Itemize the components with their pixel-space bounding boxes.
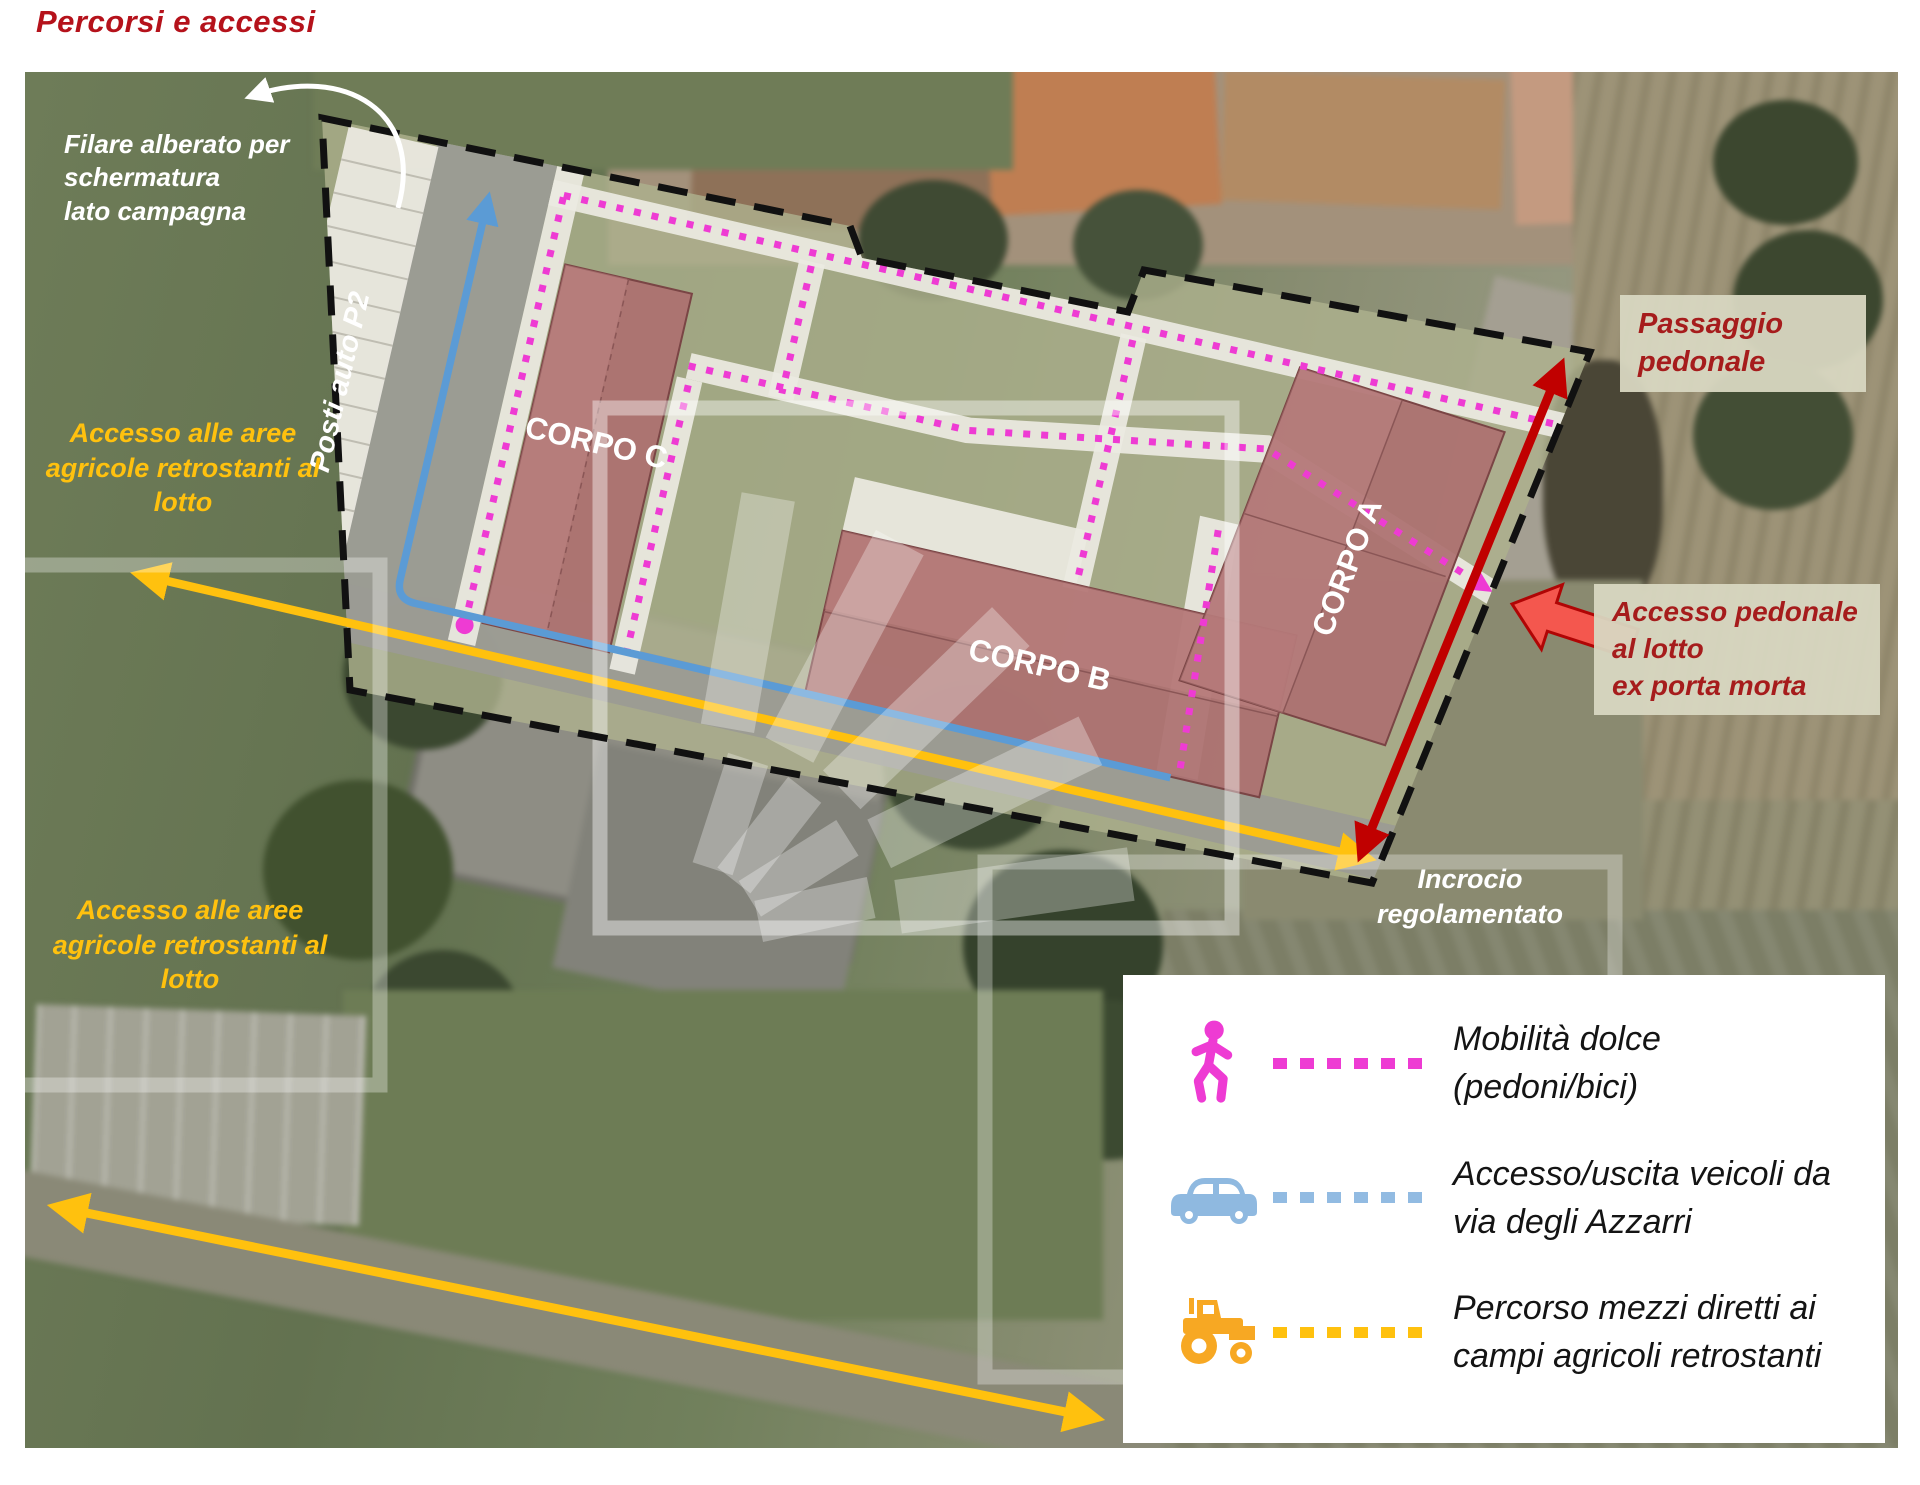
note-line: Accesso alle aree — [18, 416, 348, 451]
note-line: regolamentato — [1330, 897, 1610, 932]
note-line: lato campagna — [64, 195, 289, 228]
box-line: Passaggio — [1638, 305, 1848, 343]
note-access-bottom: Accesso alle aree agricole retrostanti a… — [40, 893, 340, 997]
note-line: agricole retrostanti al — [40, 928, 340, 963]
note-line: schermatura — [64, 161, 289, 194]
tractor-icon — [1153, 1295, 1273, 1369]
pedestrian-icon — [1153, 1020, 1273, 1106]
box-line: pedonale — [1638, 343, 1848, 381]
farm-access-arrow-bottom — [57, 1207, 1095, 1418]
legend-label-line: campi agricoli retrostanti — [1453, 1332, 1851, 1380]
box-passaggio: Passaggio pedonale — [1620, 295, 1866, 392]
note-incrocio: Incrocio regolamentato — [1330, 862, 1610, 931]
box-line: Accesso pedonale — [1612, 594, 1862, 631]
legend-label-line: Accesso/uscita veicoli da — [1453, 1150, 1851, 1198]
legend-label-line: via degli Azzarri — [1453, 1198, 1851, 1246]
note-line: Incrocio — [1330, 862, 1610, 897]
legend-item-mezzi-agricoli: Percorso mezzi diretti ai campi agricoli… — [1153, 1284, 1851, 1381]
legend-label: Accesso/uscita veicoli da via degli Azza… — [1453, 1150, 1851, 1247]
legend-dots-pink — [1273, 1058, 1425, 1069]
legend-dots-blue — [1273, 1192, 1425, 1203]
note-line: Filare alberato per — [64, 128, 289, 161]
note-line: agricole retrostanti al — [18, 451, 348, 486]
legend-dots-yellow — [1273, 1327, 1425, 1338]
legend-item-mobilita-dolce: Mobilità dolce (pedoni/bici) — [1153, 1015, 1851, 1112]
note-line: Accesso alle aree — [40, 893, 340, 928]
note-filare: Filare alberato per schermatura lato cam… — [64, 128, 289, 228]
legend-item-veicoli: Accesso/uscita veicoli da via degli Azza… — [1153, 1150, 1851, 1247]
box-accesso-pedonale: Accesso pedonale al lotto ex porta morta — [1594, 584, 1880, 715]
watermark-square — [0, 565, 380, 1085]
note-access-mid: Accesso alle aree agricole retrostanti a… — [18, 416, 348, 520]
legend-label-line: Percorso mezzi diretti ai — [1453, 1284, 1851, 1332]
note-line: lotto — [40, 962, 340, 997]
legend-label-line: Mobilità dolce — [1453, 1015, 1851, 1063]
car-icon — [1153, 1167, 1273, 1229]
box-line: ex porta morta — [1612, 668, 1862, 705]
legend-label: Mobilità dolce (pedoni/bici) — [1453, 1015, 1851, 1112]
legend: Mobilità dolce (pedoni/bici) Accesso/usc… — [1123, 975, 1885, 1443]
box-line: al lotto — [1612, 631, 1862, 668]
note-line: lotto — [18, 485, 348, 520]
legend-label-line: (pedoni/bici) — [1453, 1063, 1851, 1111]
legend-label: Percorso mezzi diretti ai campi agricoli… — [1453, 1284, 1851, 1381]
